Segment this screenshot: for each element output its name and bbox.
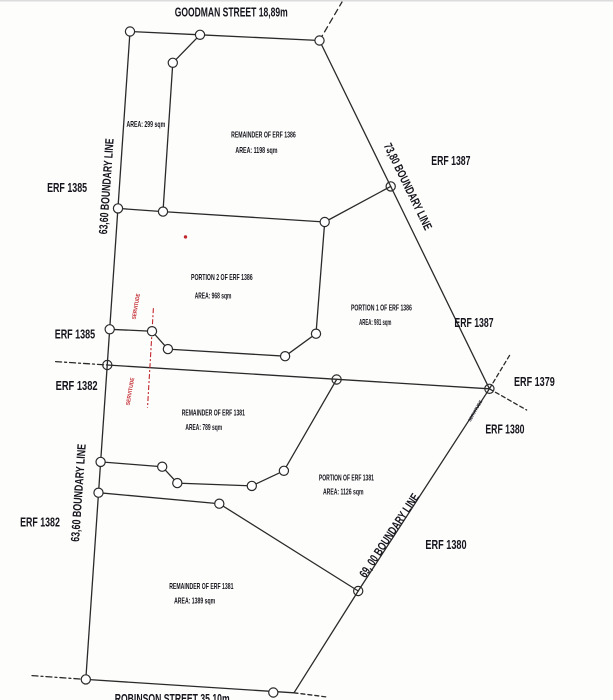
svg-text:ERF 1385: ERF 1385 [47,180,87,195]
svg-text:ROBINSON STREET 35,10m: ROBINSON STREET 35,10m [115,691,230,700]
svg-text:PORTION 2 OF ERF 1386: PORTION 2 OF ERF 1386 [191,272,253,282]
svg-text:AREA: 1198 sqm: AREA: 1198 sqm [235,145,277,155]
svg-text:AREA: 1389 sqm: AREA: 1389 sqm [174,595,215,605]
svg-text:ERF 1387: ERF 1387 [431,153,470,168]
svg-text:REMAINDER OF ERF 1386: REMAINDER OF ERF 1386 [231,130,296,140]
svg-text:AREA: 981 sqm: AREA: 981 sqm [359,317,392,327]
svg-text:ERF 1382: ERF 1382 [20,515,60,530]
svg-text:REMAINDER OF ERF 1381: REMAINDER OF ERF 1381 [182,408,245,418]
svg-text:ERF 1380: ERF 1380 [425,537,466,552]
svg-text:ERF 1387: ERF 1387 [454,315,493,330]
svg-text:ERF 1379: ERF 1379 [514,374,555,389]
svg-text:ERF 1385: ERF 1385 [55,326,95,341]
svg-text:AREA: 1126 sqm: AREA: 1126 sqm [323,487,364,497]
svg-text:AREA: 299 sqm: AREA: 299 sqm [127,119,166,129]
svg-text:AREA: 789 sqm: AREA: 789 sqm [185,422,222,432]
svg-text:ERF 1380: ERF 1380 [485,422,524,437]
svg-text:PORTION 1 OF ERF 1386: PORTION 1 OF ERF 1386 [351,303,412,313]
svg-text:GOODMAN STREET 18,89m: GOODMAN STREET 18,89m [175,4,288,19]
svg-text:AREA: 968 sqm: AREA: 968 sqm [195,291,232,301]
svg-text:REMAINDER OF ERF 1381: REMAINDER OF ERF 1381 [169,581,233,591]
svg-text:PORTION OF ERF 1381: PORTION OF ERF 1381 [319,472,374,482]
svg-text:ERF 1382: ERF 1382 [56,378,98,393]
